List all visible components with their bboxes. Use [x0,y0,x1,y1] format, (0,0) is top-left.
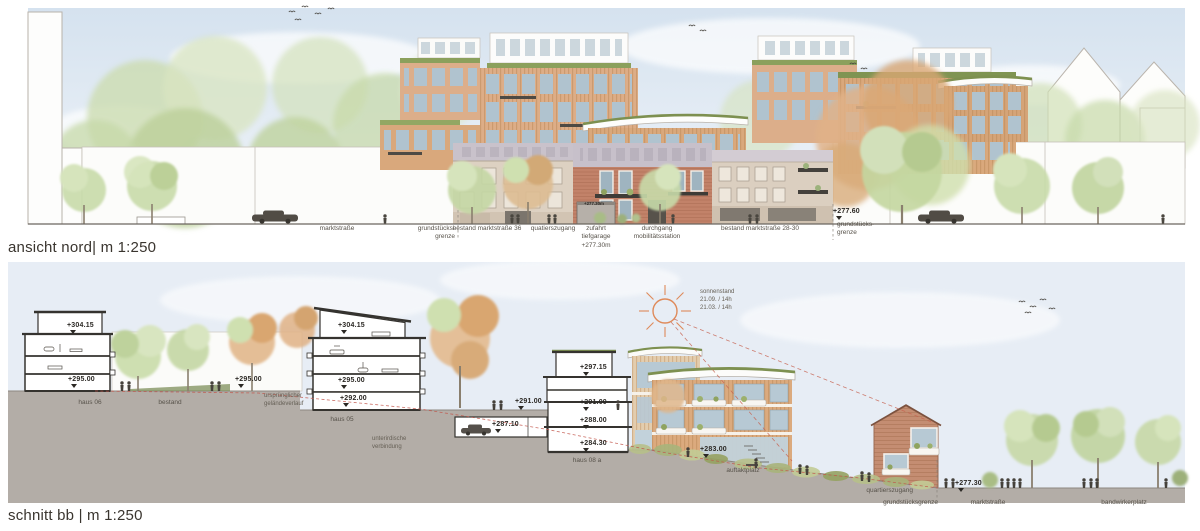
elevation-marker-haus08a-base: +284.30 [580,440,607,452]
label-grundstuecksgrenze-right: grundstücks- grenze [837,221,874,238]
label-bestand-36: bestand marktstraße 36 [453,225,522,233]
elevation-marker-haus06-ground: +295.00 [68,376,95,388]
label-durchgang-mobilitaetsstation: durchgang mobilitätsstation [634,225,681,242]
bestand-building-2830 [712,150,833,224]
panel1-caption: ansicht nord| m 1:250 [8,239,156,256]
label-zufahrt-tiefgarage: zufahrt tiefgarage +277.30m [581,225,610,250]
elevation-marker-277-60: +277.60 [833,208,860,220]
elevation-marker-haus06-top: +304.15 [67,322,94,334]
label-grundstuecksgrenze-p2: grundstücksgrenze [883,499,938,507]
label-haus08a: haus 08 a [573,457,602,465]
elevation-marker-garage-outside: +291.00 [515,398,542,410]
label-unterirdische-verbindung: unterirdische verbindung [372,436,406,452]
label-sonnenstand: sonnenstand 21.09. / 14h 21.03. / 14h [700,289,734,312]
label-quartierszugang-p2: quartierszugang [866,487,913,495]
label-bestand: bestand [158,399,181,407]
elevation-marker-street: +277.30 [955,480,982,492]
garage-height-sign: +277.30m [584,201,604,206]
label-quartierszugang-p1: quatierszugang [531,225,575,233]
label-grundstuecksgrenze-left: grundstücks- grenze [418,225,455,242]
elevation-marker-haus05-base: +292.00 [340,395,367,407]
ansicht-nord-drawing [0,0,1200,258]
elevation-marker-garage-level: +287.10 [492,421,519,433]
elevation-marker-auftaktplatz: +283.00 [700,446,727,458]
label-auftaktplatz: auftaktplatz [726,467,759,475]
label-marktstrasse-p1: marktstraße [320,225,355,233]
elevation-marker-haus05-ground: +295.00 [338,377,365,389]
label-marktstrasse-p2: marktstraße [971,499,1006,507]
architectural-drawing-sheet: marktstraße grundstücks- grenze bestand … [0,0,1200,531]
label-haus05: haus 05 [330,416,353,424]
elevation-marker-bestand-ground: +295.00 [235,376,262,388]
elevation-marker-haus08a-l2: +291.00 [580,399,607,411]
elevation-marker-haus08a-top: +297.15 [580,364,607,376]
panel2-caption: schnitt bb | m 1:250 [8,507,143,524]
schnitt-bb-drawing [0,258,1200,531]
label-bestand-28-30: bestand marktstraße 28-30 [721,225,799,233]
label-bandwirkerplatz: bandwirkerplatz [1101,499,1147,507]
elevation-marker-haus08a-l1: +288.00 [580,417,607,429]
elevation-marker-haus05-top: +304.15 [338,322,365,334]
label-gelaendeverlauf: ursprünglicher geländeverlauf [264,393,303,409]
label-haus06: haus 06 [78,399,101,407]
